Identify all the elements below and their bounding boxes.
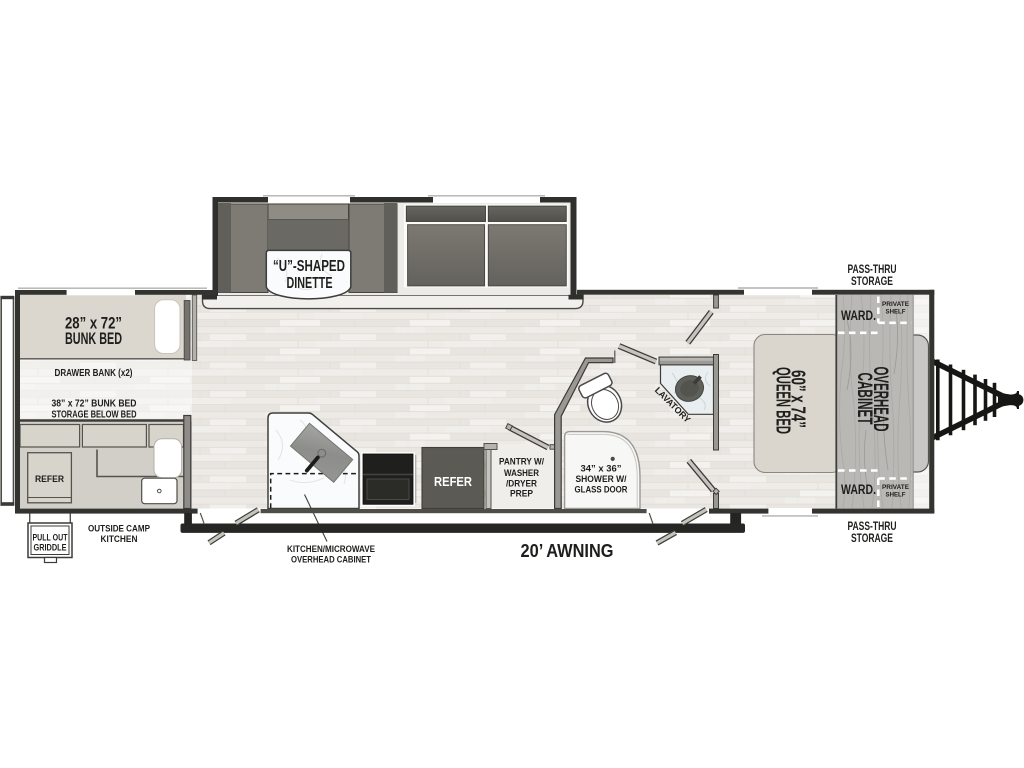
- svg-text:CABINET: CABINET: [853, 373, 876, 425]
- svg-text:DINETTE: DINETTE: [287, 275, 333, 292]
- svg-text:KITCHEN/MICROWAVE: KITCHEN/MICROWAVE: [287, 544, 375, 555]
- svg-text:“U”-SHAPED: “U”-SHAPED: [273, 258, 345, 275]
- svg-text:PREP: PREP: [510, 489, 533, 499]
- svg-text:PULL OUT: PULL OUT: [33, 533, 68, 543]
- svg-text:/DRYER: /DRYER: [506, 479, 537, 489]
- svg-text:REFER: REFER: [434, 474, 473, 489]
- svg-text:OVERHEAD CABINET: OVERHEAD CABINET: [291, 555, 371, 566]
- svg-text:PANTRY W/: PANTRY W/: [499, 457, 544, 467]
- svg-text:STORAGE: STORAGE: [851, 276, 893, 288]
- svg-text:REFER: REFER: [35, 474, 64, 485]
- svg-text:KITCHEN: KITCHEN: [101, 534, 138, 545]
- svg-text:GRIDDLE: GRIDDLE: [34, 543, 67, 553]
- svg-text:QUEEN BED: QUEEN BED: [772, 367, 794, 434]
- svg-text:WARD.: WARD.: [841, 482, 876, 497]
- svg-text:SHELF: SHELF: [886, 492, 906, 499]
- svg-text:SHELF: SHELF: [886, 309, 906, 316]
- svg-text:STORAGE: STORAGE: [851, 533, 893, 545]
- svg-text:20’ AWNING: 20’ AWNING: [521, 541, 614, 561]
- svg-text:STORAGE BELOW BED: STORAGE BELOW BED: [52, 409, 137, 421]
- svg-text:GLASS DOOR: GLASS DOOR: [575, 485, 628, 495]
- svg-text:PASS-THRU: PASS-THRU: [848, 264, 897, 276]
- svg-text:PRIVATE: PRIVATE: [882, 301, 909, 308]
- svg-text:BUNK BED: BUNK BED: [65, 330, 122, 348]
- svg-text:PRIVATE: PRIVATE: [882, 484, 909, 491]
- svg-text:WASHER: WASHER: [504, 468, 539, 478]
- svg-text:34” x 36”: 34” x 36”: [581, 464, 622, 474]
- svg-text:DRAWER BANK (x2): DRAWER BANK (x2): [55, 367, 133, 379]
- svg-text:SHOWER W/: SHOWER W/: [576, 474, 627, 484]
- svg-text:OUTSIDE CAMP: OUTSIDE CAMP: [88, 524, 151, 535]
- svg-text:WARD.: WARD.: [841, 308, 876, 323]
- svg-text:PASS-THRU: PASS-THRU: [848, 521, 897, 533]
